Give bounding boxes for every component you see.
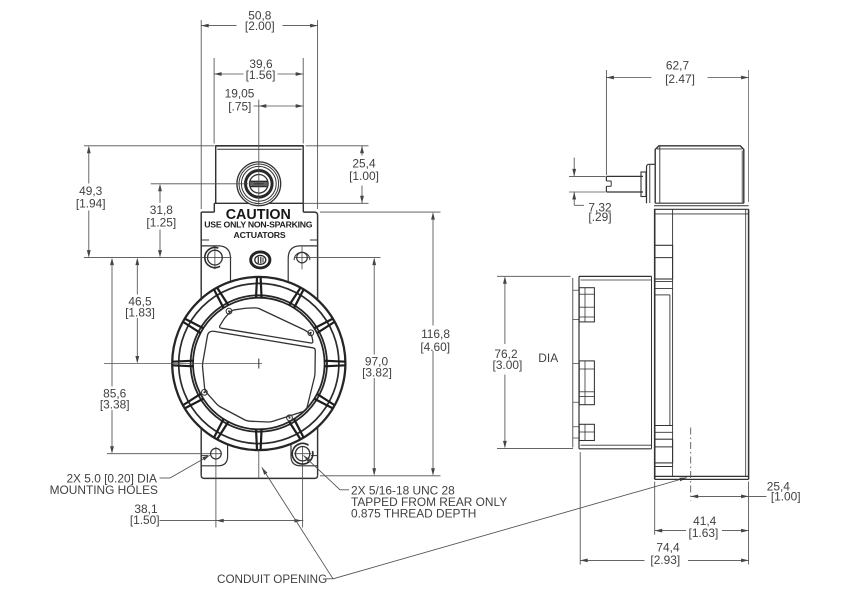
svg-text:DIA: DIA (538, 351, 558, 365)
svg-text:[1.94]: [1.94] (76, 197, 106, 211)
svg-text:MOUNTING HOLES: MOUNTING HOLES (50, 483, 158, 497)
svg-text:[.75]: [.75] (228, 99, 251, 113)
svg-text:[1.56]: [1.56] (246, 68, 276, 82)
svg-text:0.875 THREAD DEPTH: 0.875 THREAD DEPTH (351, 506, 476, 520)
svg-text:[3.38]: [3.38] (100, 397, 130, 411)
svg-text:[1.83]: [1.83] (125, 306, 155, 320)
svg-text:[1.25]: [1.25] (146, 215, 176, 229)
svg-text:USE ONLY NON-SPARKING: USE ONLY NON-SPARKING (204, 220, 313, 230)
svg-text:[2.93]: [2.93] (650, 553, 680, 567)
svg-text:[2.00]: [2.00] (245, 19, 275, 33)
svg-text:[3.00]: [3.00] (493, 358, 523, 372)
svg-text:ACTUATORS: ACTUATORS (234, 230, 286, 240)
svg-text:[2.47]: [2.47] (665, 72, 695, 86)
svg-text:CONDUIT OPENING: CONDUIT OPENING (217, 573, 327, 586)
svg-text:[1.50]: [1.50] (130, 513, 160, 527)
svg-text:[4.60]: [4.60] (420, 340, 450, 354)
svg-text:116,8: 116,8 (421, 327, 450, 341)
svg-text:19,05: 19,05 (225, 86, 255, 100)
svg-text:[.29]: [.29] (588, 210, 611, 224)
svg-text:[1.00]: [1.00] (771, 490, 801, 504)
svg-text:[1.63]: [1.63] (689, 526, 719, 540)
svg-text:[1.00]: [1.00] (349, 169, 379, 183)
svg-text:62,7: 62,7 (666, 58, 690, 72)
svg-text:[3.82]: [3.82] (362, 366, 392, 380)
